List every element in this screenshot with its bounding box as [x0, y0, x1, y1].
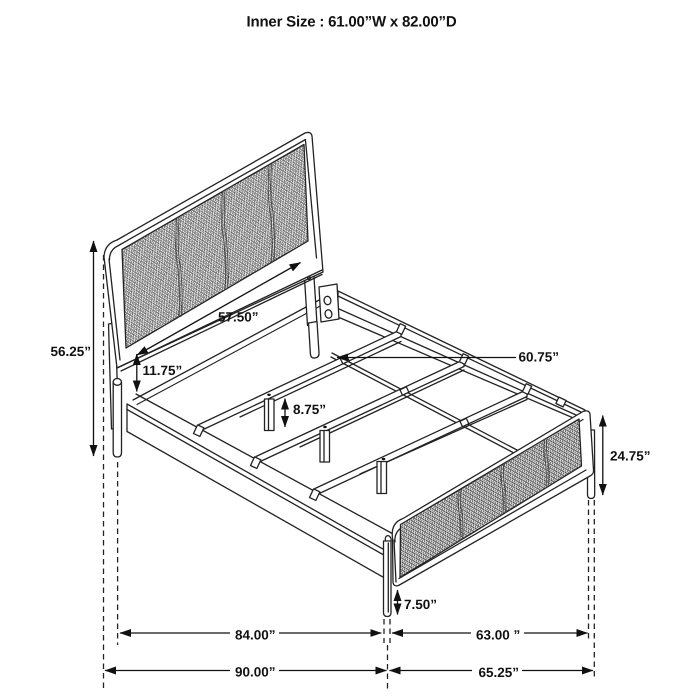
svg-text:60.75”: 60.75”	[519, 350, 560, 365]
svg-text:Inner Size : 61.00”W x 82.00”D: Inner Size : 61.00”W x 82.00”D	[247, 14, 457, 31]
svg-text:90.00”: 90.00”	[235, 665, 276, 680]
svg-text:7.50”: 7.50”	[404, 597, 437, 612]
svg-text:57.50”: 57.50”	[218, 310, 259, 325]
svg-text:11.75”: 11.75”	[143, 363, 183, 378]
svg-text:65.25”: 65.25”	[479, 665, 520, 680]
svg-text:24.75”: 24.75”	[610, 449, 651, 464]
svg-text:84.00”: 84.00”	[235, 628, 276, 643]
svg-text:63.00 ”: 63.00 ”	[476, 628, 520, 643]
svg-text:8.75”: 8.75”	[293, 402, 326, 417]
svg-text:56.25”: 56.25”	[50, 344, 91, 359]
